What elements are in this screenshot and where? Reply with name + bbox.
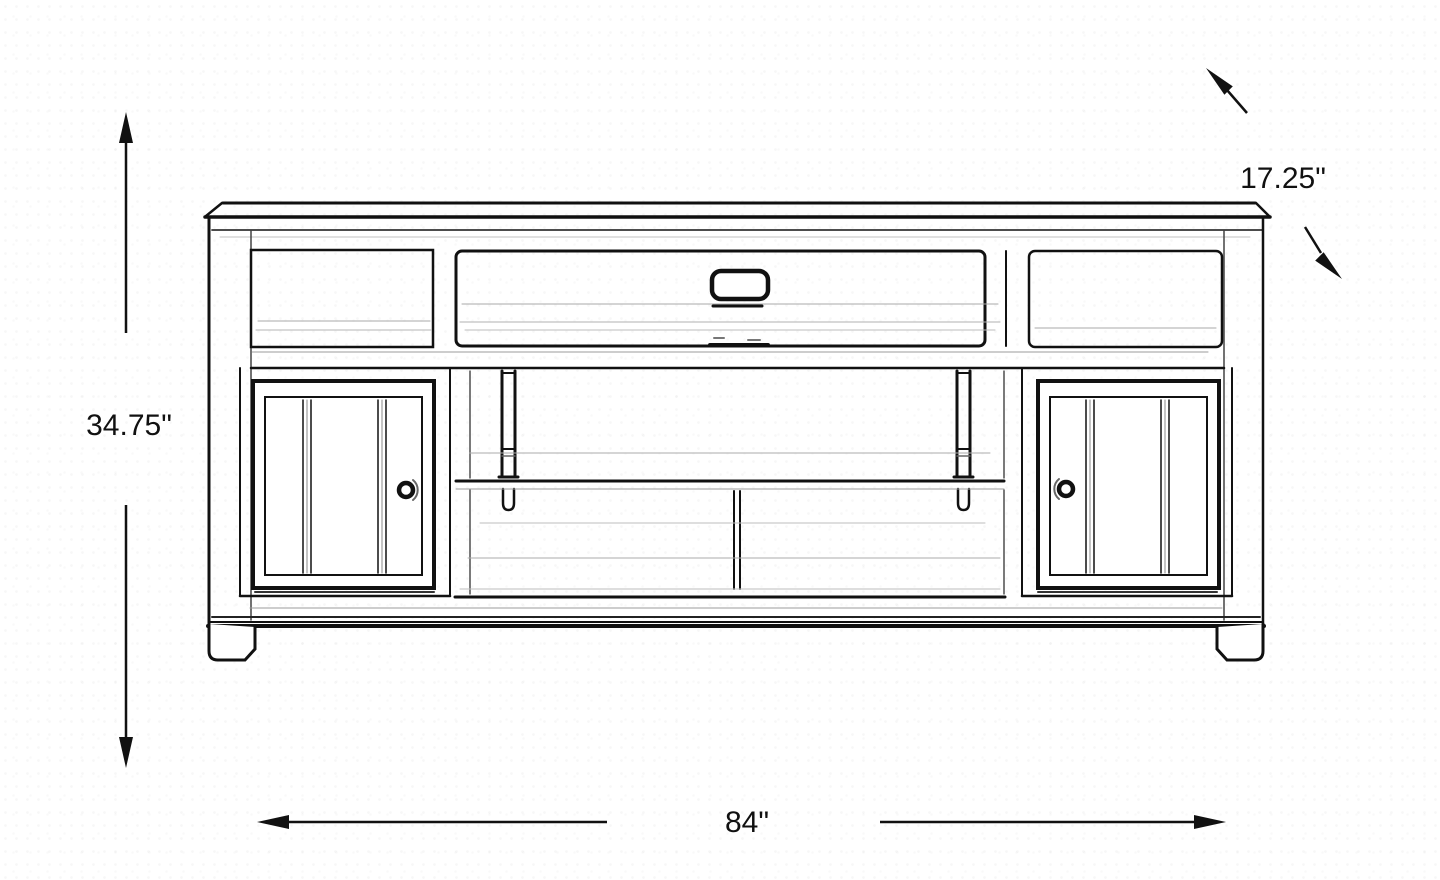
console-sketch-svg: 34.75" 84" 17.25" xyxy=(0,0,1440,880)
right-door-knob xyxy=(1059,482,1073,496)
center-divider xyxy=(734,491,740,589)
depth-dimension-label: 17.25" xyxy=(1240,162,1326,195)
width-dimension: 84" xyxy=(257,806,1226,839)
arrow-down-icon xyxy=(119,737,133,768)
height-dimension: 34.75" xyxy=(86,112,172,768)
lower-row xyxy=(240,368,1232,597)
console-top xyxy=(205,203,1270,237)
right-cabinet-door xyxy=(1022,368,1232,596)
left-door-knob xyxy=(399,483,413,497)
center-drawer xyxy=(456,251,1000,346)
left-cabinet-door xyxy=(240,368,450,596)
top-row xyxy=(251,250,1224,368)
arrow-up-icon xyxy=(119,112,133,143)
width-dimension-label: 84" xyxy=(725,806,769,839)
right-open-compartment xyxy=(1029,251,1222,347)
left-leg xyxy=(209,624,255,660)
depth-dimension: 17.25" xyxy=(1206,68,1342,279)
legs xyxy=(209,624,1263,660)
center-shelf-area xyxy=(455,371,1005,597)
arrow-down-right-icon xyxy=(1315,252,1342,279)
drawer-handle xyxy=(712,271,768,299)
arrow-left-icon xyxy=(257,815,289,829)
console-sketch xyxy=(205,203,1270,660)
right-leg xyxy=(1217,624,1263,660)
dimension-diagram: 34.75" 84" 17.25" xyxy=(0,0,1440,880)
arrow-right-icon xyxy=(1194,815,1226,829)
left-open-compartment xyxy=(251,250,433,347)
height-dimension-label: 34.75" xyxy=(86,409,172,442)
